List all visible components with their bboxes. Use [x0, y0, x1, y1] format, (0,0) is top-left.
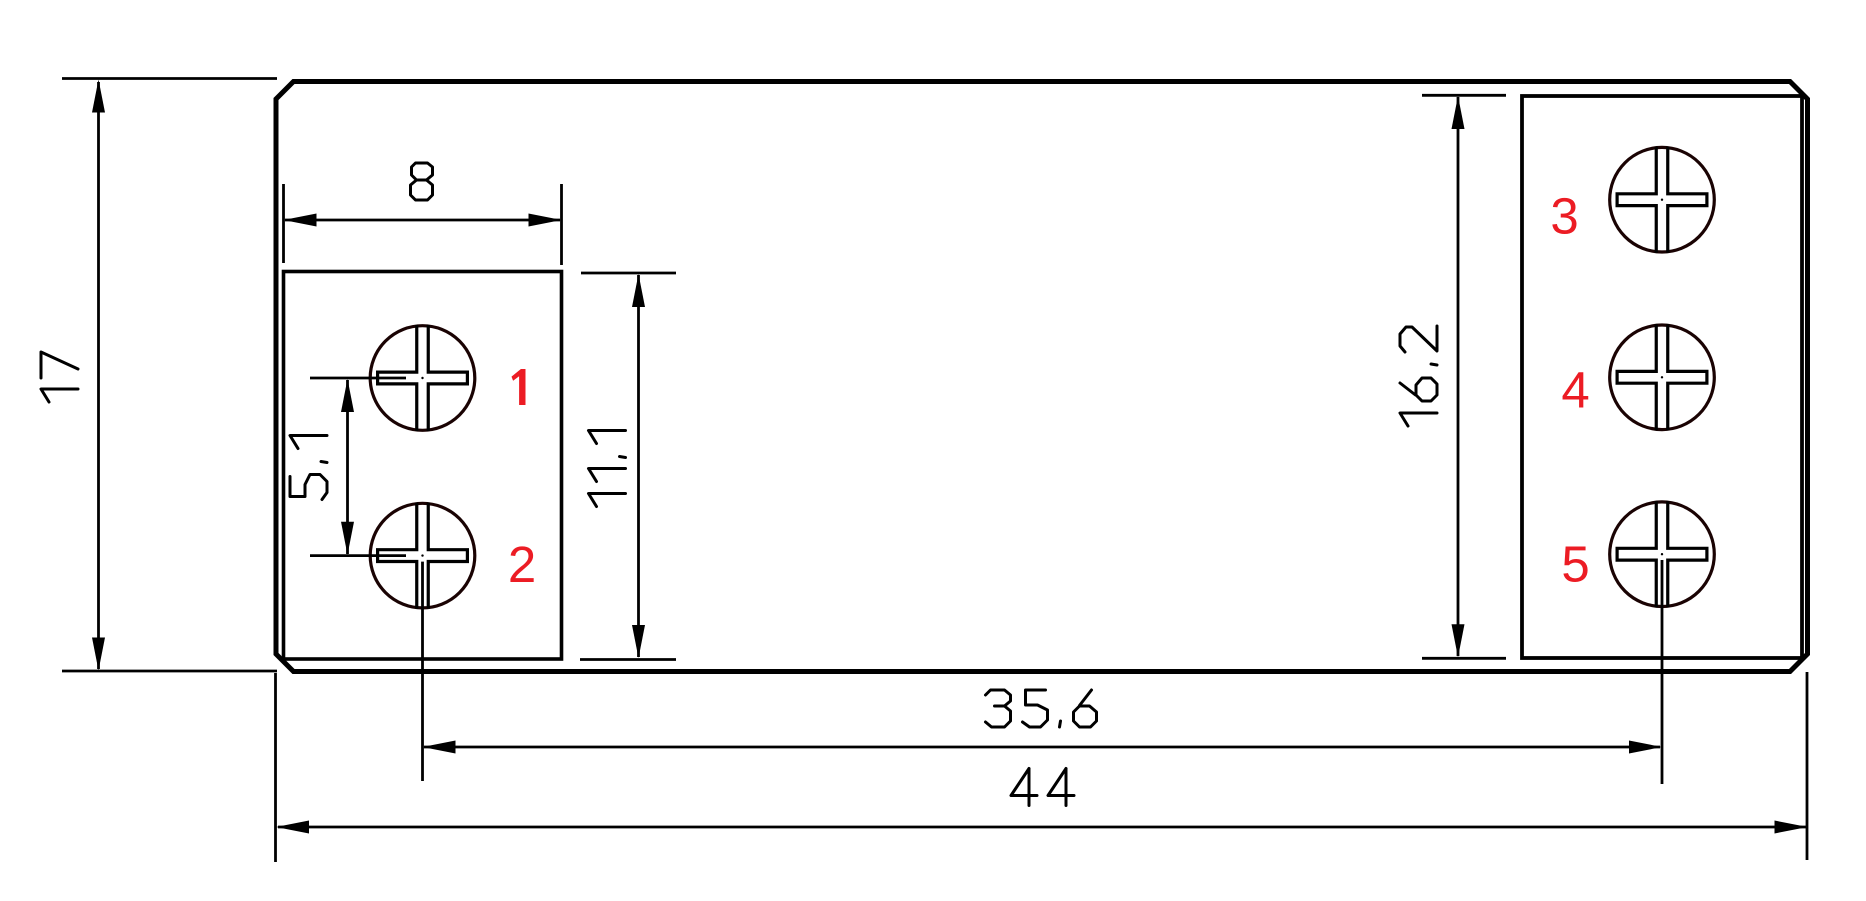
svg-text:2: 2 [508, 536, 536, 593]
svg-text:5: 5 [1561, 535, 1589, 592]
svg-text:3: 3 [1550, 187, 1578, 244]
svg-text:4: 4 [1561, 361, 1589, 418]
